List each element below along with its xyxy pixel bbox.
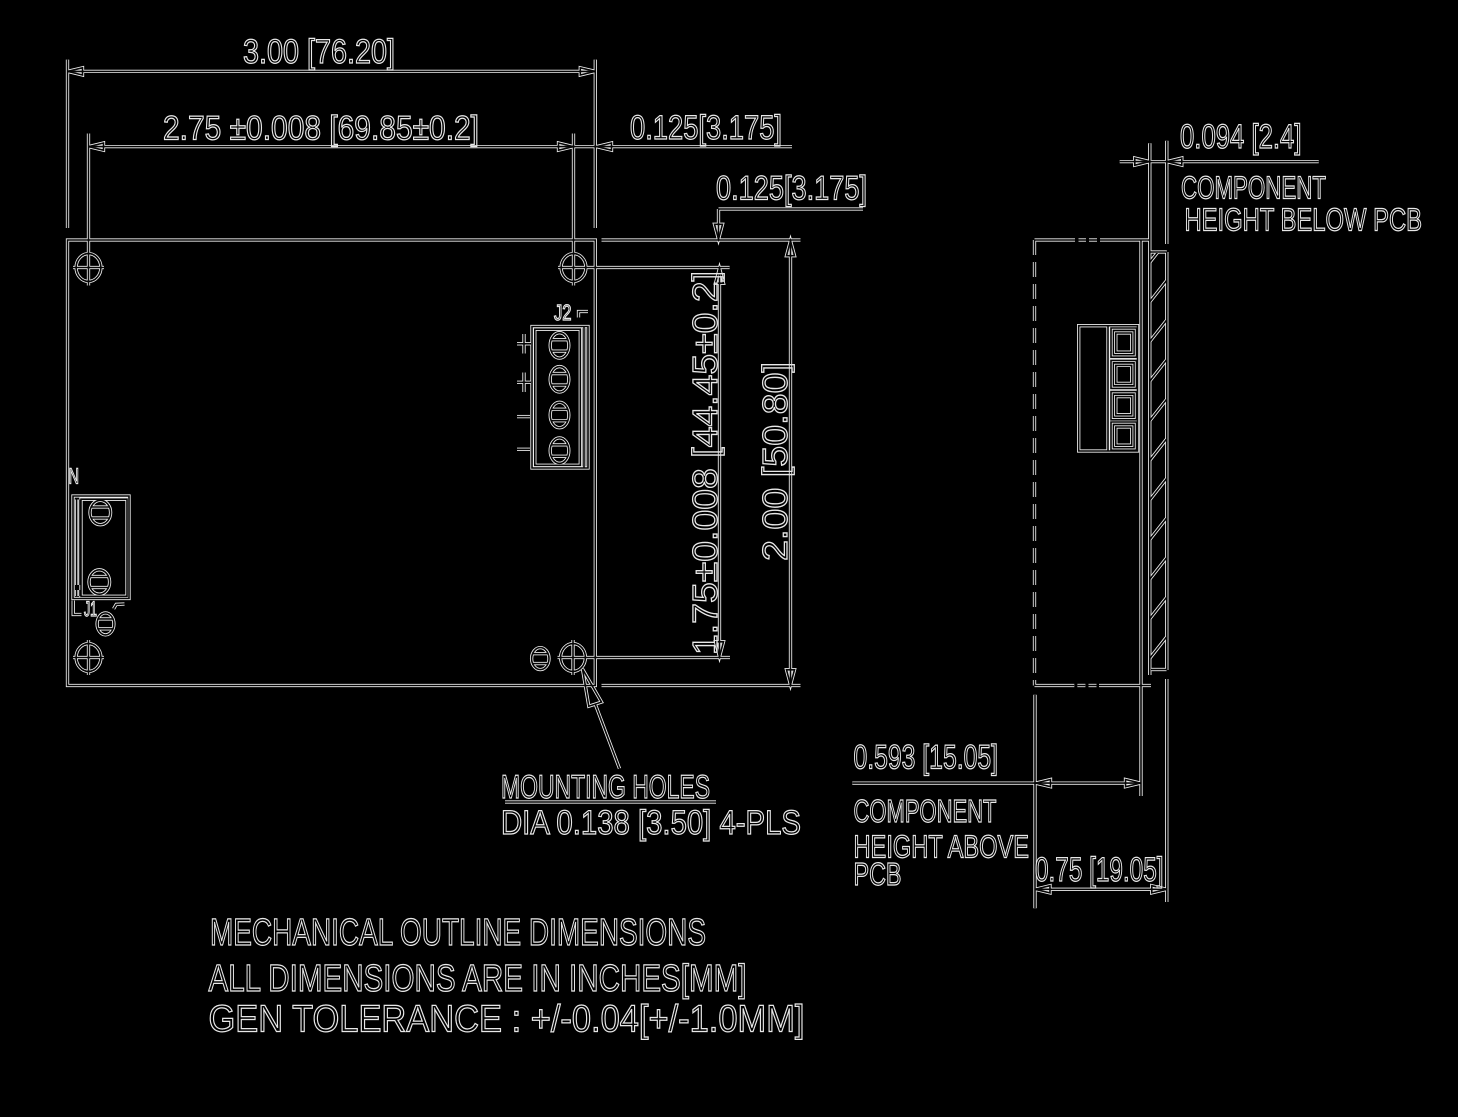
svg-text:MECHANICAL OUTLINE DIMENSIONS: MECHANICAL OUTLINE DIMENSIONS (210, 912, 706, 954)
svg-text:0.094 [2.4]: 0.094 [2.4] (1180, 118, 1302, 156)
svg-text:GEN TOLERANCE : +/-0.04[+/-1.0: GEN TOLERANCE : +/-0.04[+/-1.0MM] (209, 999, 805, 1041)
svg-text:J1: J1 (84, 598, 97, 621)
svg-text:0.75 [19.05]: 0.75 [19.05] (1035, 851, 1164, 889)
svg-text:1.75±0.008 [44.45±0.2]: 1.75±0.008 [44.45±0.2] (686, 271, 725, 655)
svg-text:MOUNTING HOLES: MOUNTING HOLES (501, 768, 710, 805)
svg-text:0.593 [15.05]: 0.593 [15.05] (854, 739, 999, 777)
svg-text:DIA 0.138 [3.50] 4-PLS: DIA 0.138 [3.50] 4-PLS (501, 804, 801, 842)
svg-text:0.125[3.175]: 0.125[3.175] (716, 170, 867, 208)
svg-text:2.75 ±0.008 [69.85±0.2]: 2.75 ±0.008 [69.85±0.2] (163, 110, 479, 148)
svg-text:ALL DIMENSIONS ARE IN INCHES[M: ALL DIMENSIONS ARE IN INCHES[MM] (209, 958, 747, 1000)
svg-text:COMPONENT: COMPONENT (1181, 170, 1326, 206)
svg-text:N: N (69, 464, 80, 489)
svg-text:COMPONENT: COMPONENT (854, 793, 997, 829)
svg-text:PCB: PCB (854, 856, 902, 892)
svg-text:J2: J2 (554, 300, 572, 325)
svg-text:3.00 [76.20]: 3.00 [76.20] (243, 33, 395, 71)
svg-text:0.125[3.175]: 0.125[3.175] (630, 109, 782, 147)
svg-text:HEIGHT BELOW PCB: HEIGHT BELOW PCB (1185, 202, 1423, 238)
svg-text:2.00 [50.80]: 2.00 [50.80] (756, 362, 795, 561)
